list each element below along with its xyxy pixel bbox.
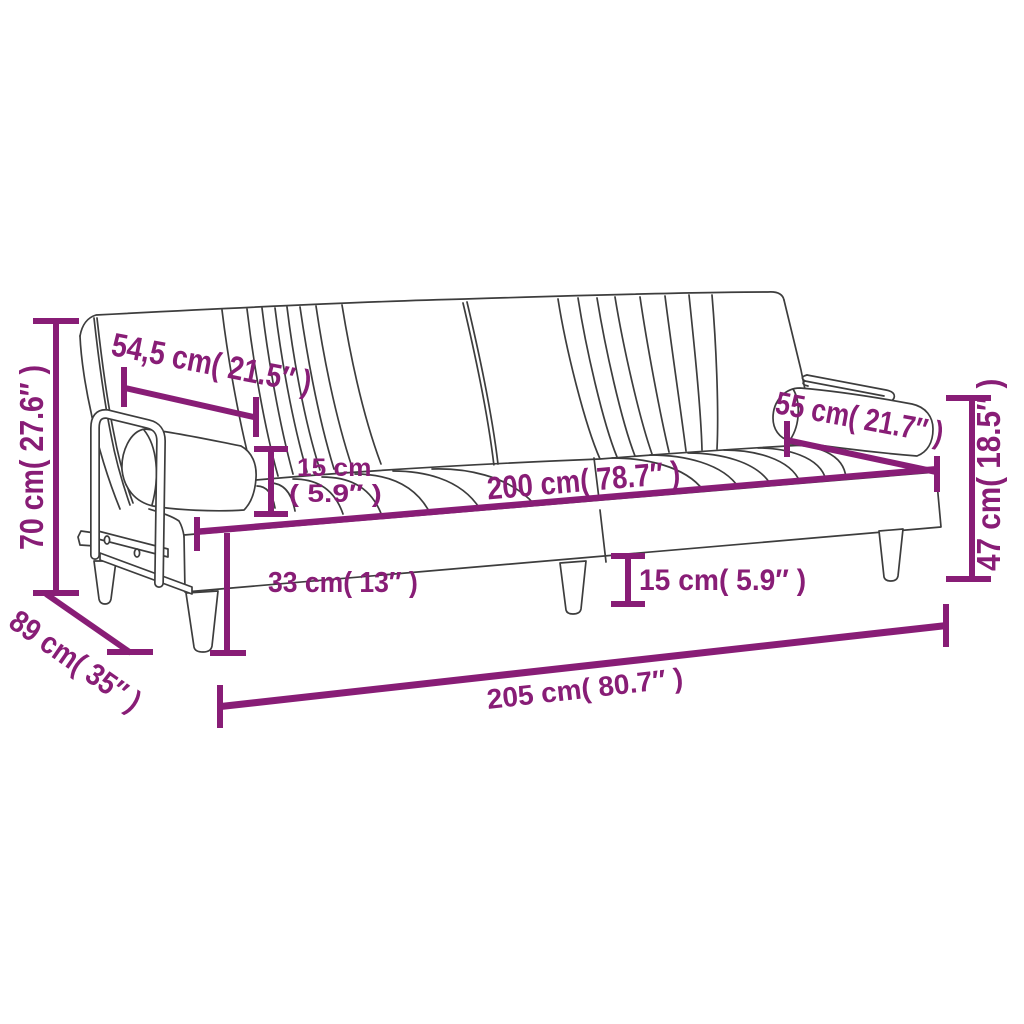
svg-text:15 cm: 15 cm xyxy=(297,455,371,482)
svg-text:33 cm( 13″ ): 33 cm( 13″ ) xyxy=(268,566,418,598)
svg-text:( 5.9″ ): ( 5.9″ ) xyxy=(289,479,382,507)
svg-text:15 cm( 5.9″ ): 15 cm( 5.9″ ) xyxy=(639,564,806,597)
svg-text:70 cm( 27.6″ ): 70 cm( 27.6″ ) xyxy=(13,365,50,550)
svg-text:47 cm( 18.5″ ): 47 cm( 18.5″ ) xyxy=(971,379,1008,571)
